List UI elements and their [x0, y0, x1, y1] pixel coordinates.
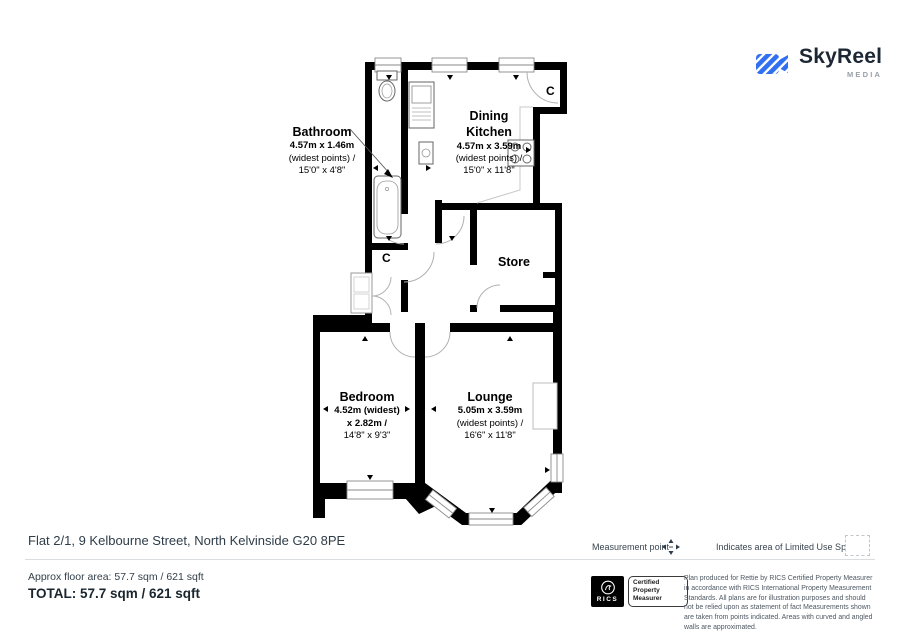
total-floor-area: TOTAL: 57.7 sqm / 621 sqft [28, 586, 200, 601]
lounge-dim-note: (widest points) / [457, 418, 524, 430]
bedroom-dim-metric-1: 4.52m (widest) [334, 405, 399, 417]
skyreel-camera-icon [754, 46, 790, 82]
front-door [351, 273, 372, 313]
kitchen-sink-icon [409, 82, 434, 128]
door-arc-lounge [425, 332, 450, 357]
measurement-point-icon [662, 539, 680, 555]
measurement-point-label: Measurement point [592, 542, 669, 552]
basin-icon [419, 142, 433, 164]
logo-tagline: MEDIA [847, 70, 882, 79]
room-label-lounge: Lounge 5.05m x 3.59m (widest points) / 1… [457, 389, 524, 442]
kitchen-name-2: Kitchen [456, 124, 523, 140]
door-arc-store [477, 285, 500, 308]
window-kitchen-top-1 [432, 58, 467, 72]
bedroom-name: Bedroom [334, 389, 399, 405]
plan-disclaimer: Plan produced for Rettie by RICS Certifi… [684, 574, 876, 633]
logo-name: SkyReel [799, 46, 882, 67]
lounge-dim-imperial: 16'6" x 11'8" [457, 430, 524, 442]
kitchen-name-1: Dining [456, 108, 523, 124]
bathtub-icon [374, 176, 401, 238]
room-label-dining-kitchen: Dining Kitchen 4.57m x 3.59m (widest poi… [456, 108, 523, 178]
window-bedroom [347, 481, 393, 499]
footer-divider [25, 559, 875, 560]
store-name: Store [498, 254, 530, 270]
bay-window-center [469, 513, 513, 525]
room-label-bedroom: Bedroom 4.52m (widest) x 2.82m / 14'8" x… [334, 389, 399, 442]
kitchen-dim-imperial: 15'0" x 11'8" [456, 165, 523, 177]
certified-property-measurer-badge: Certified Property Measurer [628, 576, 688, 607]
room-label-store: Store [498, 254, 530, 270]
lounge-dim-metric: 5.05m x 3.59m [457, 405, 524, 417]
rics-badge: RICS [591, 576, 624, 607]
room-label-bathroom: Bathroom 4.57m x 1.46m (widest points) /… [289, 124, 356, 177]
door-arc-bedroom [390, 332, 415, 357]
lounge-recess [533, 383, 557, 429]
logo: SkyReel MEDIA [754, 46, 882, 82]
window-lounge-right [551, 454, 563, 482]
cupboard-label-kitchen: C [546, 84, 555, 98]
approx-floor-area: Approx floor area: 57.7 sqm / 621 sqft [28, 571, 204, 583]
door-arc-front-2 [372, 296, 391, 315]
window-bathroom-top [375, 58, 401, 72]
limited-use-label: Indicates area of Limited Use Space [716, 542, 861, 552]
floorplan-page: Bathroom 4.57m x 1.46m (widest points) /… [0, 0, 900, 636]
door-arc-hall-cupboard [404, 252, 434, 282]
rics-brand-text: RICS [597, 596, 619, 603]
bathroom-dim-note: (widest points) / [289, 153, 356, 165]
kitchen-dim-metric: 4.57m x 3.59m [456, 141, 523, 153]
bedroom-dim-metric-2: x 2.82m / [334, 418, 399, 430]
property-address: Flat 2/1, 9 Kelbourne Street, North Kelv… [28, 533, 345, 548]
limited-use-swatch [845, 535, 870, 556]
window-kitchen-top-2 [499, 58, 534, 72]
cupboard-label-hall: C [382, 251, 391, 265]
door-arc-front-1 [372, 277, 391, 296]
bathroom-dim-imperial: 15'0" x 4'8" [289, 165, 356, 177]
bathroom-dim-metric: 4.57m x 1.46m [289, 140, 356, 152]
lounge-name: Lounge [457, 389, 524, 405]
rics-lion-icon [599, 580, 617, 595]
bathroom-name: Bathroom [289, 124, 356, 140]
bedroom-dim-imperial: 14'8" x 9'3" [334, 430, 399, 442]
kitchen-dim-note: (widest points) / [456, 153, 523, 165]
